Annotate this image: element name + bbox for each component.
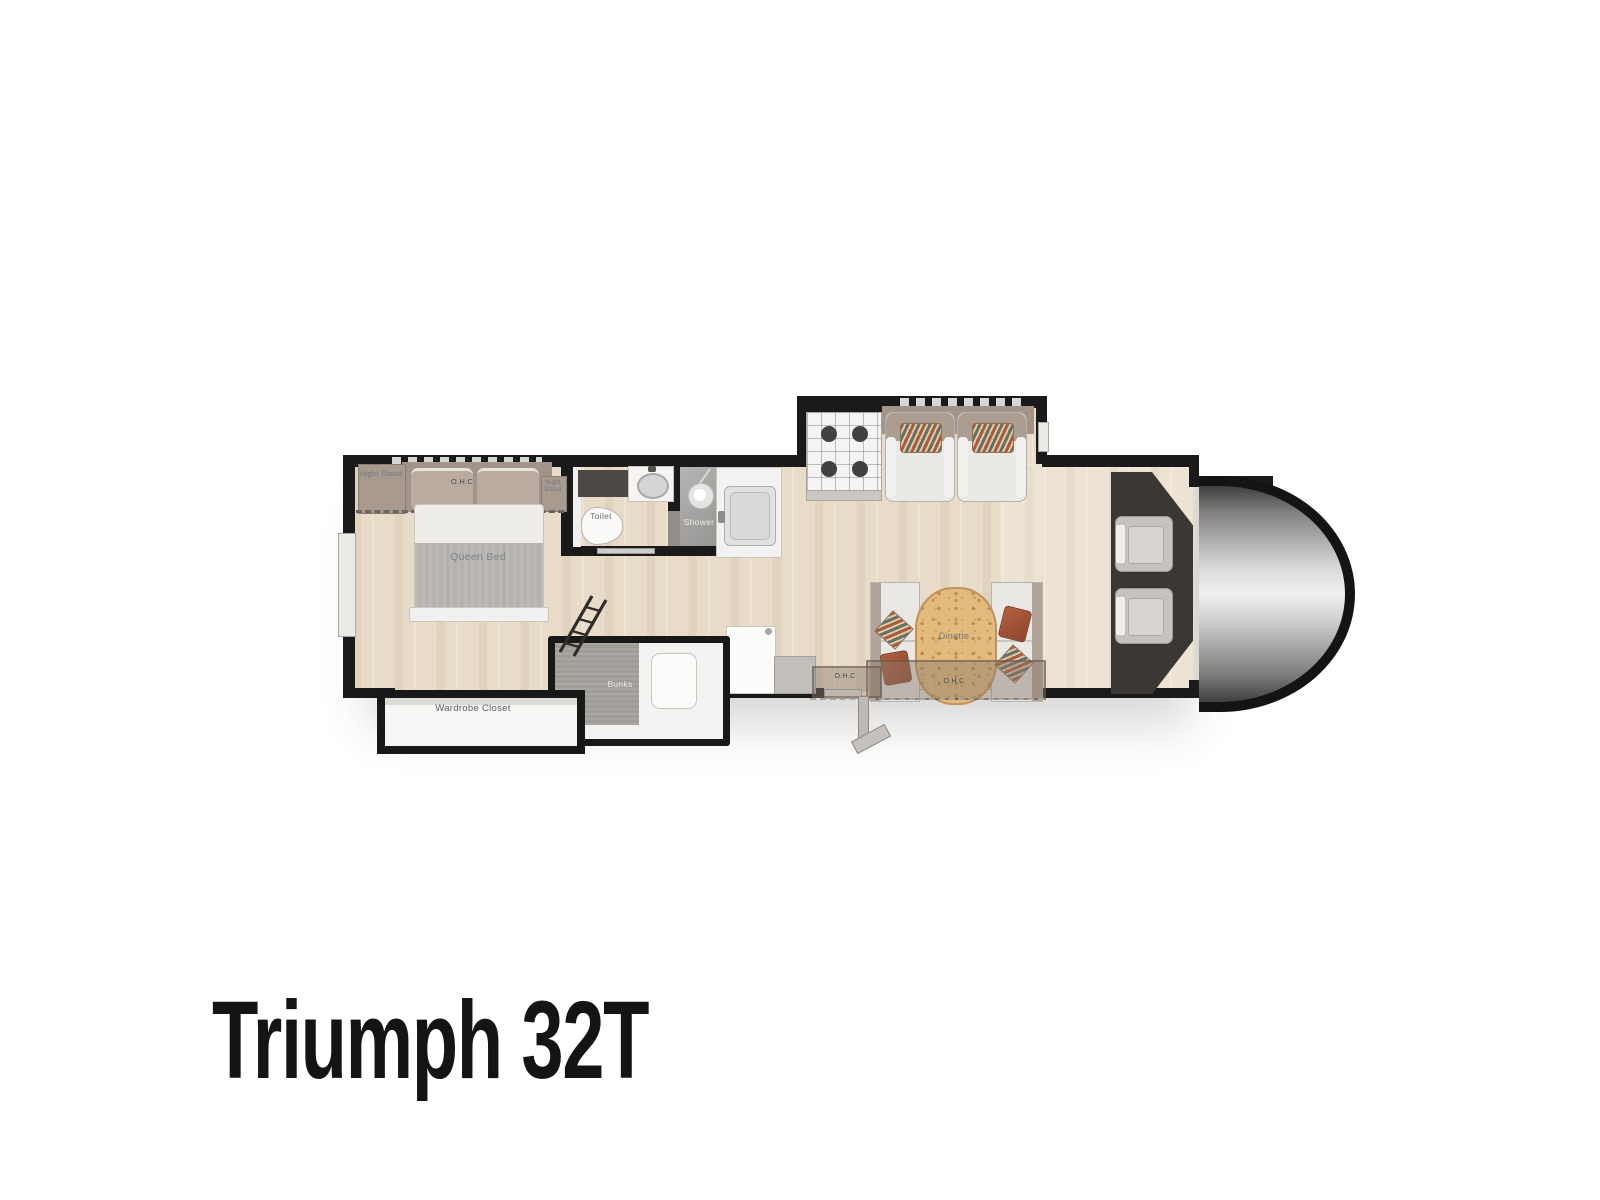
kitchen-sink-basin bbox=[730, 492, 770, 540]
shower bbox=[680, 467, 718, 546]
theater-seat bbox=[885, 412, 955, 502]
overhead-cabinet-label: O.H.C bbox=[426, 478, 498, 486]
cab-seat bbox=[1115, 516, 1173, 572]
night-stand-label: Night Stand bbox=[539, 480, 567, 493]
cab-seat-cushion bbox=[1128, 598, 1164, 636]
queen-bed-label: Queen Bed bbox=[414, 552, 542, 564]
burner-icon bbox=[821, 426, 837, 442]
burner-icon bbox=[852, 426, 868, 442]
cooktop-ledge bbox=[806, 490, 882, 501]
dinette-label: Dinette bbox=[915, 631, 993, 641]
floorplan-page: Night Stand O.H.C Night Stand Queen Bed … bbox=[0, 0, 1600, 1200]
overhead-cabinet-label: O.H.C bbox=[866, 678, 1042, 686]
bench-seam bbox=[994, 640, 1032, 642]
galley-cabinet bbox=[774, 656, 816, 694]
window bbox=[338, 533, 356, 637]
bed-footboard bbox=[409, 607, 549, 622]
wardrobe-closet bbox=[377, 690, 585, 754]
cab-nose bbox=[1199, 476, 1355, 712]
slideout-dash-line bbox=[810, 698, 1044, 700]
cab-seat-cushion bbox=[1128, 526, 1164, 564]
shower-arm bbox=[699, 468, 711, 484]
cab-seat-back bbox=[1116, 597, 1125, 635]
cab-seat bbox=[1115, 588, 1173, 644]
seat-pillow bbox=[900, 423, 942, 453]
bed-sheet bbox=[415, 505, 543, 543]
window bbox=[1038, 422, 1049, 452]
window-band bbox=[900, 398, 1025, 406]
bunks-label: Bunks bbox=[588, 680, 652, 690]
refrigerator-knob bbox=[765, 628, 772, 635]
faucet-icon bbox=[648, 466, 656, 472]
bathroom-cabinet bbox=[668, 511, 680, 546]
sink-basin bbox=[637, 473, 669, 499]
bathroom-counter bbox=[578, 470, 630, 497]
toilet-label: Toilet bbox=[577, 512, 625, 522]
vanity-sink bbox=[628, 466, 674, 502]
wall-segment bbox=[343, 455, 355, 535]
burner-icon bbox=[821, 461, 837, 477]
cooktop bbox=[806, 412, 882, 492]
shower-head-center bbox=[694, 489, 706, 501]
entry-door-swing bbox=[851, 724, 891, 754]
bunk-ladder-icon bbox=[552, 590, 616, 660]
seat-armrest bbox=[886, 437, 896, 497]
wall-segment bbox=[1042, 455, 1197, 467]
shower-label: Shower bbox=[676, 518, 722, 528]
bathroom-pocket-door bbox=[597, 548, 655, 554]
night-stand-label: Night Stand bbox=[356, 470, 406, 478]
seat-armrest bbox=[958, 437, 968, 497]
cab-seat-back bbox=[1116, 525, 1125, 563]
wardrobe-closet-label: Wardrobe Closet bbox=[385, 704, 561, 715]
seat-pillow bbox=[972, 423, 1014, 453]
kitchen-counter bbox=[716, 467, 782, 558]
burner-icon bbox=[852, 461, 868, 477]
plan-title: Triumph 32T bbox=[212, 986, 648, 1096]
bunk-pillow bbox=[651, 653, 697, 709]
seat-armrest bbox=[1016, 437, 1026, 497]
seat-armrest bbox=[944, 437, 954, 497]
refrigerator bbox=[726, 626, 776, 694]
theater-seat bbox=[957, 412, 1027, 502]
